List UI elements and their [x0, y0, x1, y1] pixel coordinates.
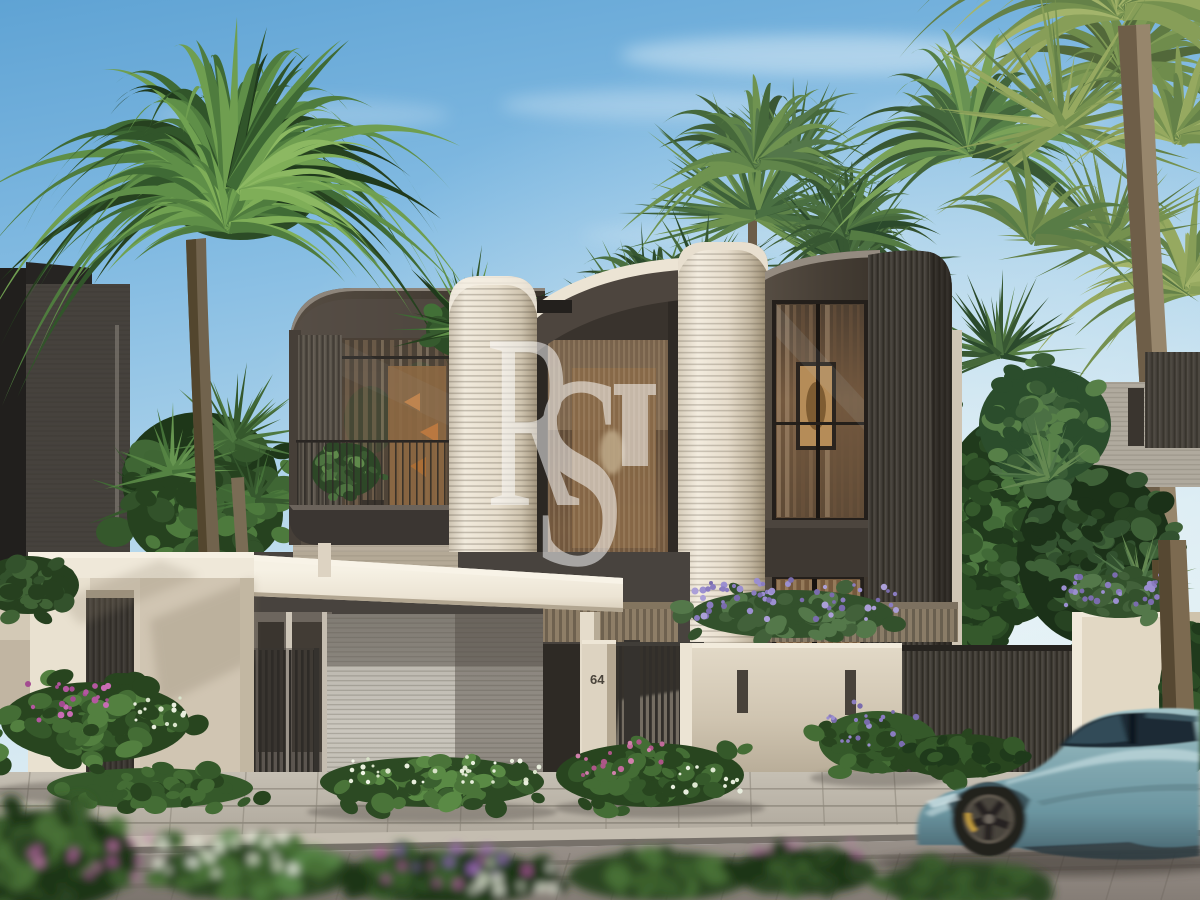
svg-text:S: S — [531, 318, 628, 624]
svg-text:64: 64 — [590, 672, 605, 687]
